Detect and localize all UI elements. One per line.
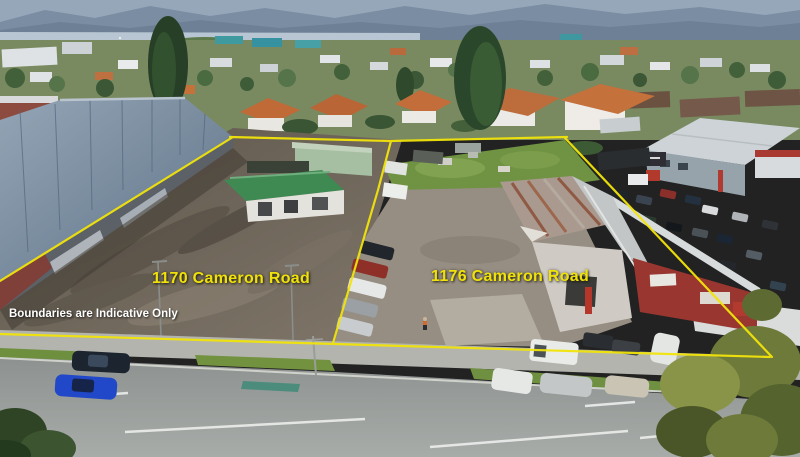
brown-roof [745, 89, 800, 107]
house-wall [248, 118, 284, 131]
aerial-photo-canvas [0, 0, 800, 457]
car [635, 194, 652, 205]
property-label-1176: 1176 Cameron Road [431, 268, 589, 286]
tree [581, 63, 599, 81]
yard-junk [468, 152, 478, 158]
house-roof [95, 72, 113, 80]
car [691, 227, 708, 238]
gravel-patch [420, 236, 520, 264]
house-roof [260, 64, 278, 72]
tree [633, 73, 647, 87]
teal-roof [215, 36, 243, 44]
red-truck-cab [646, 170, 660, 181]
pole-crossarm [306, 339, 323, 340]
house-roof [750, 64, 770, 72]
tree [240, 77, 254, 91]
car [769, 280, 786, 291]
tree [681, 66, 699, 84]
car [659, 188, 676, 199]
house-roof [390, 48, 406, 55]
house-roof [650, 62, 670, 70]
yard-junk [498, 166, 510, 172]
car [716, 233, 733, 244]
house-roof [210, 58, 232, 67]
boat [119, 37, 121, 39]
tree [5, 68, 25, 88]
grey-shed [455, 143, 481, 153]
hedge [365, 115, 395, 129]
person-hivis [423, 321, 427, 325]
teal-roof [560, 34, 582, 40]
floodlight-head [285, 265, 299, 266]
house-roof [430, 58, 452, 67]
tree [334, 64, 350, 80]
window [678, 163, 688, 170]
car [701, 204, 718, 215]
conifer-foliage [152, 32, 176, 108]
container-trailer [597, 147, 651, 170]
house-wall [402, 111, 436, 123]
tree [742, 289, 782, 321]
aerial-photo: 1170 Cameron Road 1176 Cameron Road Boun… [0, 0, 800, 457]
house-wall [318, 115, 352, 127]
shop-front [755, 156, 800, 178]
tree [49, 76, 65, 92]
car [745, 249, 762, 260]
car [761, 219, 778, 230]
sign-board [650, 273, 677, 286]
person-head [423, 317, 427, 321]
doorway [312, 197, 328, 210]
car-windshield [88, 354, 109, 367]
dark-container [247, 161, 309, 173]
tree [197, 70, 213, 86]
floodlight-head [152, 261, 167, 262]
house-roof [118, 60, 138, 69]
tree [278, 69, 296, 87]
house-roof [62, 42, 92, 54]
dark-car [582, 332, 614, 350]
tree [729, 62, 745, 78]
grey-roof [600, 117, 641, 134]
property-label-1170: 1170 Cameron Road [152, 270, 310, 288]
tree [96, 79, 114, 97]
house-roof [30, 72, 52, 82]
house-roof [700, 58, 722, 67]
boundary-disclaimer: Boundaries are Indicative Only [9, 308, 178, 320]
tree [768, 71, 786, 89]
doorway [258, 202, 272, 216]
car [731, 211, 748, 222]
house-roof [620, 47, 638, 55]
house-roof [600, 55, 624, 65]
house-roof [320, 55, 340, 63]
doorway [284, 200, 298, 213]
white-van [628, 174, 648, 185]
red-stripe [718, 170, 723, 192]
house-roof [530, 60, 550, 68]
red-vertical-sign [585, 287, 592, 314]
concrete-pad [430, 294, 542, 346]
tree-canopy [660, 354, 740, 414]
tree [537, 70, 553, 86]
teal-roof [252, 38, 282, 47]
house-roof [370, 62, 388, 70]
brown-roof [680, 96, 741, 117]
car [684, 194, 701, 205]
house-roof [2, 47, 58, 68]
red-sign-band [755, 150, 800, 157]
conifer-foliage [470, 42, 502, 126]
car-windshield [72, 378, 95, 393]
teal-roof [295, 40, 321, 48]
